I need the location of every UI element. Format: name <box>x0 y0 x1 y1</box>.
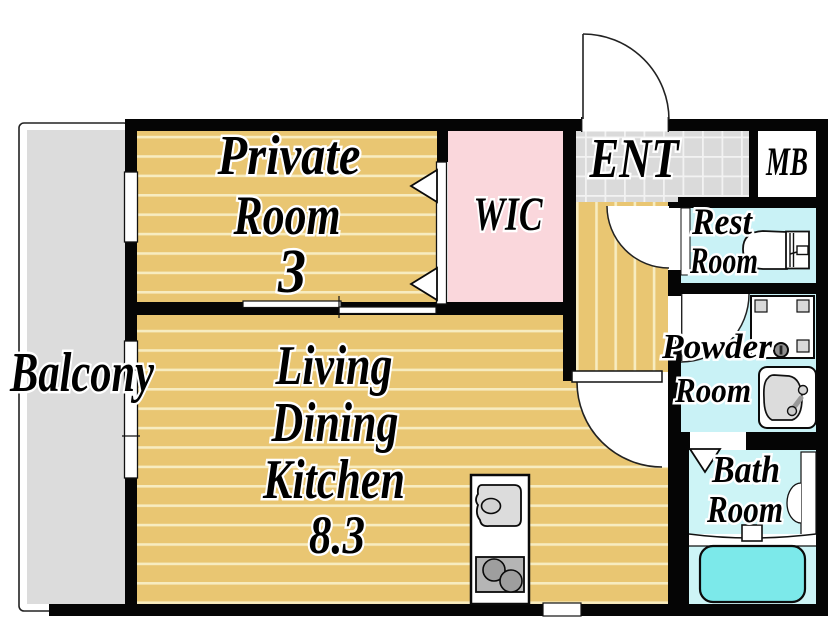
svg-text:Bath: Bath <box>711 449 780 491</box>
svg-text:Balcony: Balcony <box>9 342 155 404</box>
svg-text:Rest: Rest <box>691 202 753 243</box>
svg-text:Dining: Dining <box>271 392 399 454</box>
svg-text:3: 3 <box>277 238 306 306</box>
svg-text:Living: Living <box>275 335 393 397</box>
svg-text:8.3: 8.3 <box>309 505 365 565</box>
svg-text:Room: Room <box>674 371 751 410</box>
svg-text:ENT: ENT <box>589 128 681 190</box>
svg-text:WIC: WIC <box>474 188 544 241</box>
svg-text:Room: Room <box>689 241 758 282</box>
svg-text:Kitchen: Kitchen <box>262 449 405 511</box>
svg-text:Private: Private <box>217 125 361 187</box>
svg-text:Room: Room <box>706 489 783 531</box>
svg-text:Powder: Powder <box>661 327 772 366</box>
svg-text:MB: MB <box>765 139 808 184</box>
